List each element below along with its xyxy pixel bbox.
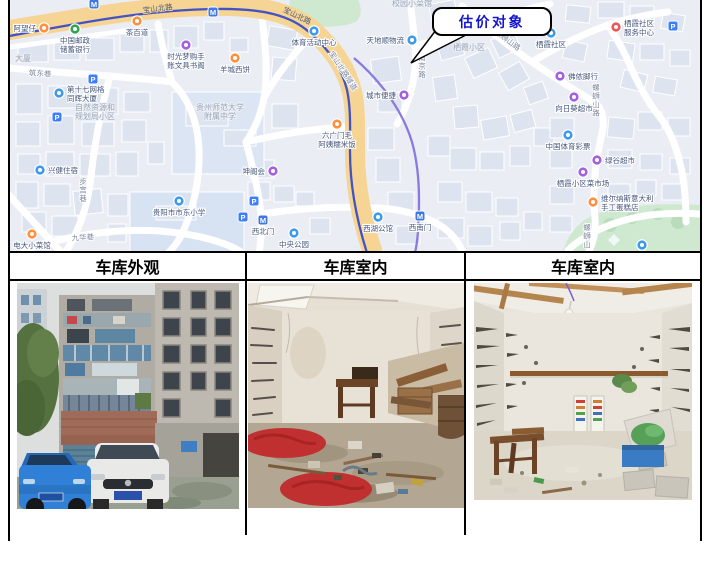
svg-text:P: P — [90, 75, 95, 84]
document-page: 宝山北路宝山北路宝山北路隧道筑东巷九华巷步宫巷南京路螺蛳山路螺蛳山路螺蛳山自然资… — [0, 0, 718, 585]
area-label: 栖霞小区 — [453, 42, 485, 52]
svg-text:中国邮政储蓄银行: 中国邮政储蓄银行 — [60, 35, 90, 54]
white-car — [87, 443, 169, 509]
callout-label: 估价对象 — [458, 14, 525, 30]
report-table: 宝山北路宝山北路宝山北路隧道筑东巷九华巷步宫巷南京路螺蛳山路螺蛳山路螺蛳山自然资… — [8, 0, 702, 541]
svg-text:电大小菜馆: 电大小菜馆 — [13, 240, 51, 250]
transit-icon: M — [89, 0, 99, 9]
svg-text:中央公园: 中央公园 — [279, 239, 309, 249]
svg-text:M: M — [417, 212, 423, 221]
poi-坤阁会-icon: 坤阁会 — [243, 166, 279, 176]
svg-text:城市便捷: 城市便捷 — [366, 90, 396, 100]
svg-text:栖霞社区: 栖霞社区 — [536, 39, 566, 49]
wall-rail — [510, 371, 668, 376]
svg-text:M: M — [91, 0, 97, 9]
location-map: 宝山北路宝山北路宝山北路隧道筑东巷九华巷步宫巷南京路螺蛳山路螺蛳山路螺蛳山自然资… — [10, 0, 700, 251]
svg-text:西湖公馆: 西湖公馆 — [363, 223, 393, 233]
svg-text:栖霞小区菜市场: 栖霞小区菜市场 — [557, 178, 610, 188]
poi-绿谷超市-icon: 绿谷超市 — [592, 155, 636, 165]
road-label: 筑东巷 — [29, 67, 52, 78]
svg-text:坤阁会: 坤阁会 — [243, 166, 266, 176]
svg-text:时光梦购手账文具书阁: 时光梦购手账文具书阁 — [167, 51, 205, 70]
area-label: 大厦 — [15, 53, 31, 63]
photo-garage-exterior — [17, 283, 239, 509]
svg-text:向日葵超市: 向日葵超市 — [555, 103, 593, 113]
svg-text:P: P — [670, 22, 675, 31]
svg-text:M: M — [260, 216, 266, 225]
poi-marker-icon — [637, 240, 647, 250]
svg-text:栖霞社区服务中心: 栖霞社区服务中心 — [624, 18, 654, 37]
poi-兴健住宿-icon: 兴健住宿 — [35, 165, 78, 175]
poi-城市便捷-icon: 城市便捷 — [366, 90, 409, 100]
road-label: 螺蛳山路 — [592, 82, 600, 118]
svg-text:天地顺物流: 天地顺物流 — [367, 35, 405, 45]
header-garage-interior-2: 车库室内 — [466, 253, 700, 279]
photo-caption-row: 车库外观 车库室内 车库室内 — [10, 253, 700, 281]
svg-text:P: P — [251, 197, 256, 206]
poi-阿望仔-icon: 阿望仔 — [14, 23, 50, 33]
parking-icon: P — [668, 21, 678, 31]
road-label: 九华巷 — [71, 231, 95, 243]
map-row: 宝山北路宝山北路宝山北路隧道筑东巷九华巷步宫巷南京路螺蛳山路螺蛳山路螺蛳山自然资… — [10, 0, 700, 253]
parking-icon: P — [249, 196, 259, 206]
svg-text:西南门: 西南门 — [409, 222, 432, 232]
svg-text:M: M — [210, 8, 216, 17]
svg-text:P: P — [240, 213, 245, 222]
poi-佛侬脚行-icon: 佛侬脚行 — [555, 71, 599, 81]
svg-text:绿谷超市: 绿谷超市 — [605, 155, 635, 165]
svg-text:羊城西饼: 羊城西饼 — [220, 64, 250, 74]
svg-text:西北门: 西北门 — [252, 227, 275, 236]
svg-text:体育活动中心: 体育活动中心 — [292, 37, 337, 47]
header-garage-exterior: 车库外观 — [10, 253, 247, 279]
photo-row — [10, 281, 700, 535]
area-label: 校园小菜馆 — [392, 0, 432, 8]
parking-icon: P — [238, 212, 248, 222]
parking-icon: P — [88, 74, 98, 84]
parking-icon: P — [52, 112, 62, 122]
svg-text:中国体育彩票: 中国体育彩票 — [546, 141, 591, 151]
svg-text:茶百道: 茶百道 — [126, 27, 149, 37]
area-label: 自然资源和规划局小区 — [75, 102, 115, 121]
svg-text:贵阳市市东小学: 贵阳市市东小学 — [153, 207, 206, 217]
svg-text:P: P — [54, 113, 59, 122]
transit-icon: M — [208, 7, 218, 17]
photo-garage-interior-1 — [248, 283, 464, 508]
svg-text:兴健住宿: 兴健住宿 — [48, 165, 78, 175]
header-garage-interior-1: 车库室内 — [247, 253, 466, 279]
poi-天地顺物流-icon: 天地顺物流 — [367, 35, 418, 45]
svg-text:六广门毛阿姨糯米饭: 六广门毛阿姨糯米饭 — [318, 130, 356, 149]
svg-text:阿望仔: 阿望仔 — [14, 23, 37, 33]
road-label: 螺蛳山 — [583, 222, 591, 249]
photo-garage-interior-2 — [474, 283, 692, 500]
road-label: 步宫巷 — [79, 177, 87, 203]
svg-text:佛侬脚行: 佛侬脚行 — [568, 71, 598, 81]
